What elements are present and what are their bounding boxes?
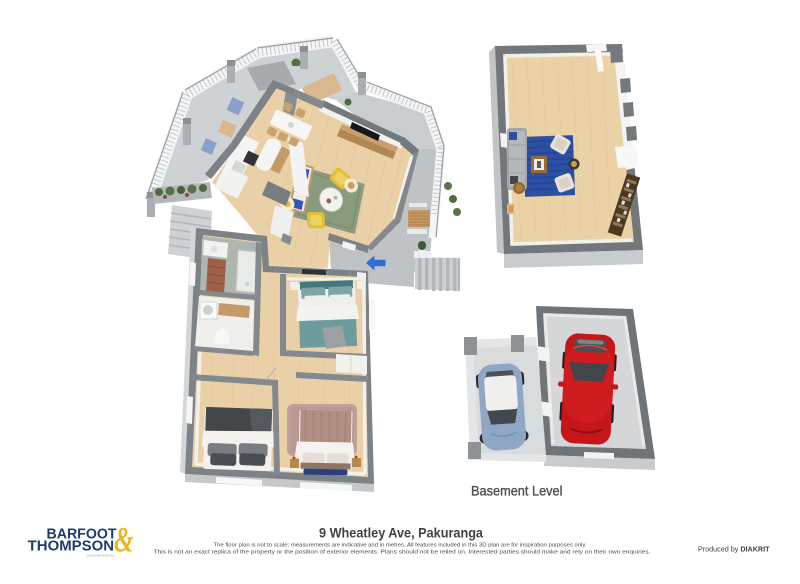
svg-text:The floor plan is not to scale: The floor plan is not to scale; measurem… xyxy=(214,543,587,549)
svg-text:Produced by DIAKRIT: Produced by DIAKRIT xyxy=(698,544,770,553)
svg-text:Basement Level: Basement Level xyxy=(471,483,563,499)
svg-text:&: & xyxy=(114,520,134,560)
svg-text:9 Wheatley Ave, Pakuranga: 9 Wheatley Ave, Pakuranga xyxy=(319,524,483,540)
svg-text:LICENSED UNDER THE REAA 2008: LICENSED UNDER THE REAA 2008 xyxy=(86,555,115,558)
svg-text:THOMPSON: THOMPSON xyxy=(28,539,114,555)
svg-text:This is not an exact replica o: This is not an exact replica of the prop… xyxy=(154,549,651,555)
